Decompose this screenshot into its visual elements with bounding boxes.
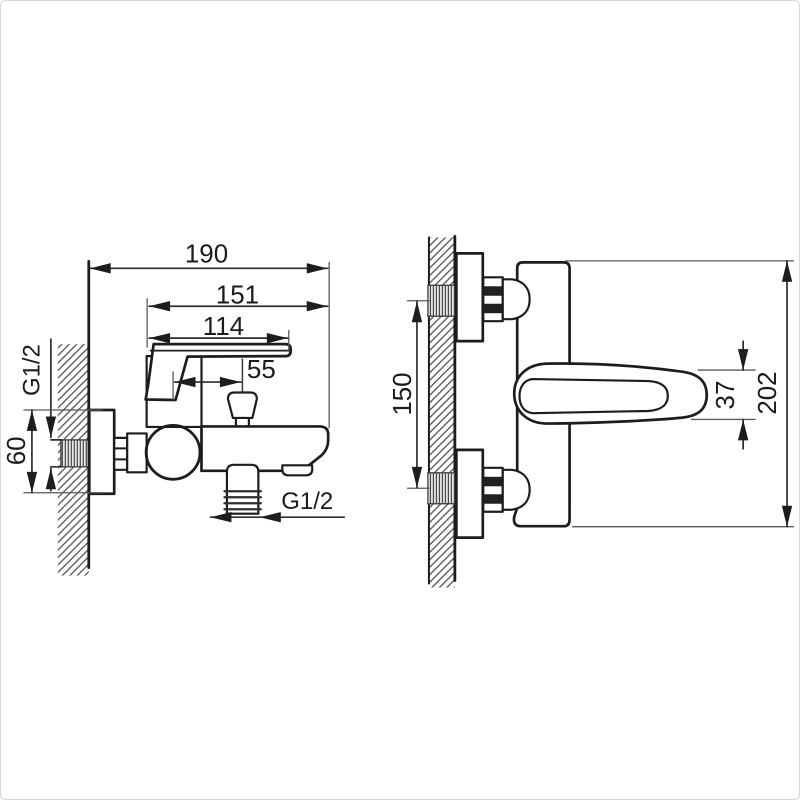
dim-spout-depth-label: 114: [203, 313, 244, 341]
arrowhead: [267, 333, 288, 343]
side-view: [58, 261, 328, 575]
arrowhead: [210, 512, 231, 522]
dim-total-height-label: 202: [754, 371, 782, 414]
wall-inlet-thread: [61, 440, 88, 467]
wall-inlet-thread-label: G1/2: [18, 344, 45, 396]
mounting-plate-top: [456, 253, 482, 341]
connector-ribs-bottom: [483, 468, 502, 512]
arrowhead: [412, 301, 422, 322]
dim-inlet-spacing: 150: [389, 301, 429, 489]
spout: [201, 426, 328, 470]
dim-inlet-spacing-label: 150: [389, 372, 417, 415]
arrowhead: [307, 301, 328, 311]
shower-outlet-pipe: [227, 465, 258, 514]
arrowhead: [738, 349, 748, 370]
aerator: [282, 465, 312, 475]
dim-diverter-offset-label: 55: [247, 356, 276, 384]
arrowhead: [149, 301, 170, 311]
dim-plate-height-label: 60: [3, 436, 31, 465]
wall-inlet-thread-bottom: [428, 473, 455, 504]
connector-nut-top: [503, 279, 530, 319]
arrowhead: [782, 506, 792, 527]
front-view: [428, 236, 707, 587]
dim-body-depth-label: 151: [216, 281, 259, 309]
arrowhead: [738, 419, 748, 440]
lever-contour-line: [520, 379, 668, 413]
arrowhead: [46, 468, 56, 489]
arrowhead: [412, 467, 422, 488]
wall-inlet-thread-top: [428, 285, 455, 316]
bottom-outlet-thread-label: G1/2: [281, 488, 333, 515]
eccentric-connector: [114, 433, 146, 472]
connector-ribs-top: [483, 277, 502, 321]
drawing-frame: 190 151 114 55: [0, 0, 800, 800]
arrowhead: [27, 472, 37, 493]
valve-body: [146, 425, 200, 479]
dim-wall-inlet-thread: G1/2: [18, 339, 61, 491]
mounting-plate-bottom: [456, 450, 482, 538]
arrowhead: [90, 263, 111, 273]
arrowhead: [46, 416, 56, 437]
mounting-plate: [89, 410, 114, 494]
dim-lever-width-label: 37: [712, 381, 740, 410]
lever-handle-front: [514, 363, 707, 423]
connector-nut-bottom: [503, 470, 530, 510]
dim-total-depth-label: 190: [185, 240, 228, 268]
arrowhead: [782, 261, 792, 282]
technical-drawing: 190 151 114 55: [1, 1, 799, 799]
arrowhead: [149, 333, 170, 343]
arrowhead: [307, 263, 328, 273]
arrowhead: [220, 377, 241, 387]
arrowhead: [27, 410, 37, 431]
arrowhead: [260, 512, 281, 522]
diverter-knob: [228, 393, 257, 427]
